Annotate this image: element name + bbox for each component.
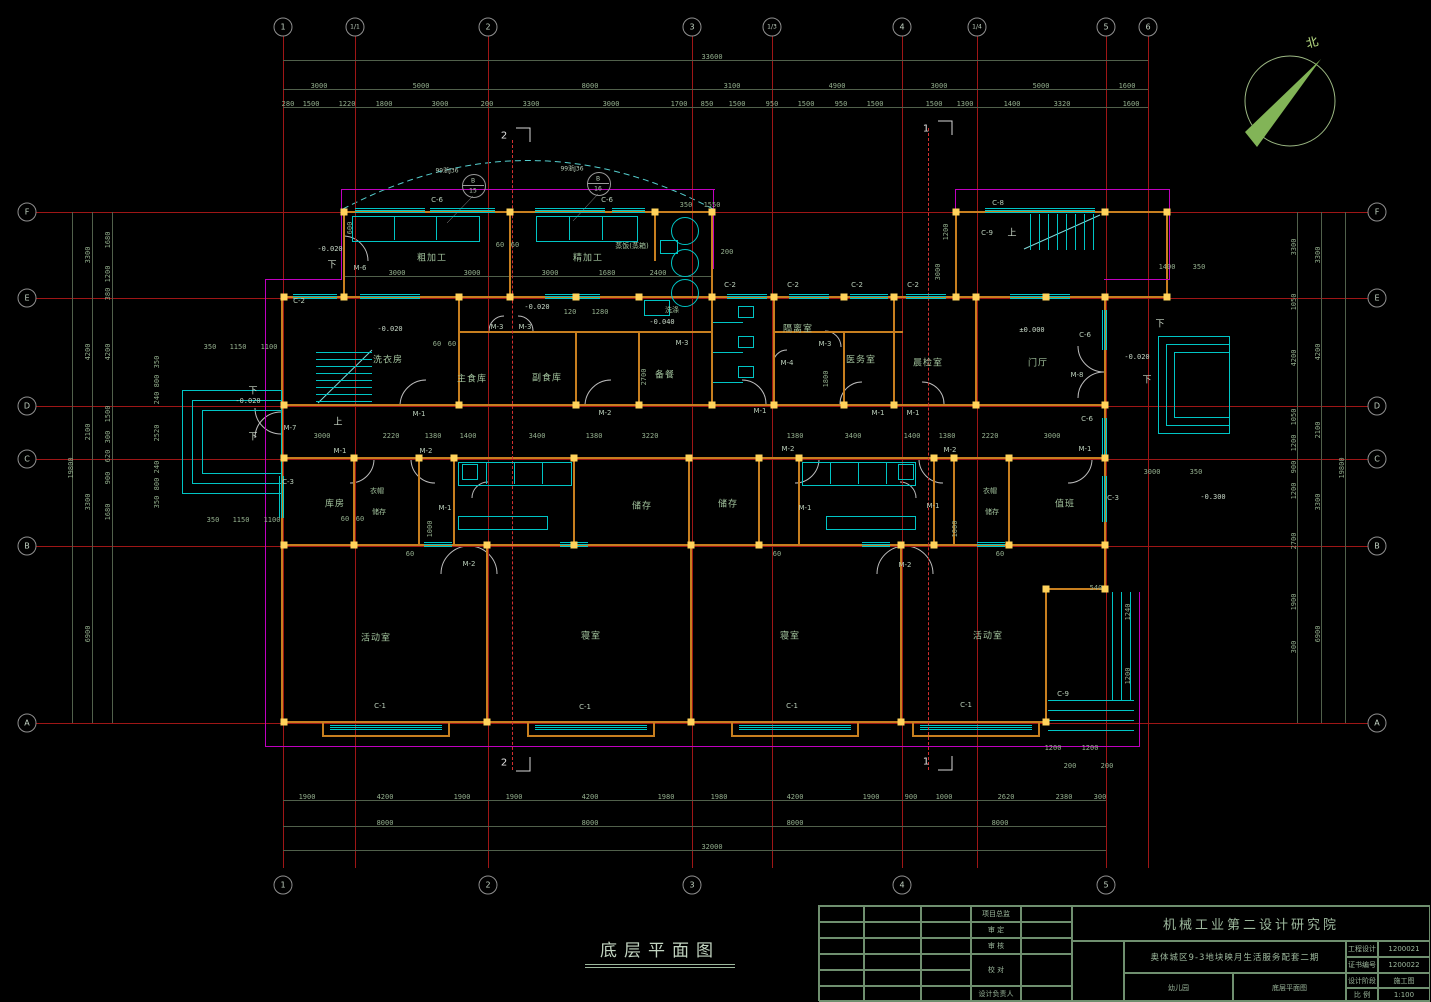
room-label: 副食库	[532, 371, 562, 384]
dimension-text: 2700	[1290, 533, 1298, 550]
column-marker	[709, 209, 716, 216]
dimension-text: 33600	[701, 53, 722, 61]
room-label: 衣帽	[370, 486, 384, 496]
wall-segment	[893, 296, 895, 406]
column-marker	[973, 294, 980, 301]
dimension-text: 200	[481, 100, 494, 108]
outline-magenta	[1104, 279, 1170, 280]
column-marker	[951, 455, 958, 462]
room-label: 蒸饭(蒸箱)	[615, 241, 648, 251]
dimension-text: 1050	[1290, 409, 1298, 426]
dimension-text: 3000	[542, 269, 559, 277]
column-marker	[281, 719, 288, 726]
dimension-text: 350	[680, 201, 693, 209]
column-marker	[484, 719, 491, 726]
column-marker	[351, 455, 358, 462]
dimension-text: 1380	[425, 432, 442, 440]
dimension-text: 1600	[1123, 100, 1140, 108]
sign-value-cell	[1021, 906, 1072, 922]
door-window-tag: M-1	[798, 504, 811, 512]
column-marker	[281, 294, 288, 301]
dimension-text: 8000	[992, 819, 1009, 827]
dimension-text: 2220	[383, 432, 400, 440]
grid-bubble-row: A	[1368, 714, 1387, 733]
detail-callout-divider	[462, 185, 484, 186]
wall-segment	[460, 331, 713, 333]
dimension-text: 60	[356, 515, 364, 523]
column-marker	[1102, 455, 1109, 462]
annotation: 15	[469, 188, 477, 195]
revision-cell	[819, 906, 864, 922]
bay-window	[920, 725, 1032, 730]
door-window-tag: M-2	[781, 445, 794, 453]
wall-segment	[1045, 588, 1047, 723]
grid-bubble-col: 5	[1097, 18, 1116, 37]
dimension-text: 3000	[389, 269, 406, 277]
fixture-rect	[352, 216, 480, 242]
room-label: 医务室	[846, 353, 876, 366]
grid-line-horizontal	[36, 546, 1368, 547]
dimension-text: 8000	[787, 819, 804, 827]
dimension-text: 800	[153, 478, 161, 491]
window-glyph	[906, 294, 946, 299]
bay-window	[739, 725, 851, 730]
dimension-text: 900	[905, 793, 918, 801]
outline-magenta	[265, 279, 342, 280]
dimension-text: 1000	[936, 793, 953, 801]
fixture-rect	[738, 366, 754, 378]
dimension-text: 4200	[1314, 344, 1322, 361]
door-window-tag: C-1	[960, 701, 972, 709]
column-marker	[652, 209, 659, 216]
drawing-path	[1078, 346, 1104, 372]
door-window-tag: M-8	[1070, 371, 1083, 379]
fixture-rect	[826, 516, 916, 530]
fixture-rect	[898, 464, 914, 480]
title-block-field-value: 1:100	[1378, 988, 1430, 1002]
column-marker	[1102, 209, 1109, 216]
dimension-text: 1800	[376, 100, 393, 108]
column-marker	[1043, 294, 1050, 301]
wall-segment	[458, 296, 460, 406]
door-window-tag: M-1	[753, 407, 766, 415]
fixture-line	[1084, 214, 1085, 250]
column-marker	[898, 719, 905, 726]
wall-segment	[843, 331, 845, 406]
column-marker	[571, 455, 578, 462]
column-marker	[891, 294, 898, 301]
dimension-text: 1700	[671, 100, 688, 108]
dimension-text: 2400	[650, 269, 667, 277]
door-window-tag: M-1	[1078, 445, 1091, 453]
wall-segment	[955, 211, 957, 298]
annotation: 下	[248, 430, 257, 443]
wall-segment	[509, 211, 511, 298]
fixture-line	[316, 373, 372, 374]
grid-bubble-col: 1/3	[763, 18, 782, 37]
door-window-tag: C-6	[601, 196, 613, 204]
room-label: 洗涤	[665, 305, 679, 315]
sign-label: 审 定	[971, 922, 1021, 938]
level-mark: -0.020	[377, 325, 402, 333]
column-marker	[281, 455, 288, 462]
window-glyph	[360, 294, 420, 299]
revision-cell	[819, 986, 864, 1002]
dimension-text: 3000	[603, 100, 620, 108]
grid-bubble-col: 2	[479, 876, 498, 895]
dimension-text: 1900	[506, 793, 523, 801]
door-window-tag: C-9	[981, 229, 993, 237]
grid-line-vertical	[488, 36, 489, 868]
room-label: 储存	[718, 497, 738, 510]
drawing-path	[400, 380, 426, 406]
room-label: 门厅	[1028, 356, 1048, 369]
fixture-line	[1048, 700, 1134, 701]
title-block-field-label: 工程设计	[1346, 941, 1378, 957]
annotation: 下	[1142, 373, 1151, 386]
door-window-tag: C-3	[1107, 494, 1119, 502]
door-window-tag: C-6	[1079, 331, 1091, 339]
wall-segment	[900, 544, 902, 723]
dimension-text: 1380	[939, 432, 956, 440]
dimension-text: 3000	[464, 269, 481, 277]
drawing-path	[938, 756, 952, 770]
grid-bubble-row: B	[18, 537, 37, 556]
room-label: 粗加工	[417, 251, 447, 264]
dimension-text: 4200	[104, 344, 112, 361]
column-marker	[1006, 455, 1013, 462]
dimension-text: 240	[153, 392, 161, 405]
fixture-line	[1039, 214, 1040, 250]
column-marker	[931, 542, 938, 549]
wall-segment	[353, 457, 355, 546]
fixture-line	[713, 322, 743, 323]
sign-value-cell	[1021, 986, 1072, 1002]
door-window-tag: M-7	[283, 424, 296, 432]
dimension-text: 1900	[863, 793, 880, 801]
bay-window	[330, 725, 442, 730]
dimension-text: 1200	[1290, 435, 1298, 452]
column-marker	[953, 294, 960, 301]
bay-front	[912, 735, 1040, 737]
section-cut-line	[512, 140, 513, 770]
wall-segment	[773, 296, 775, 406]
door-window-tag: C-6	[431, 196, 443, 204]
sign-label: 设计负责人	[971, 986, 1021, 1002]
drawing-path	[922, 382, 944, 404]
room-label: 隔离室	[783, 322, 813, 335]
dimension-text: 200	[1101, 762, 1114, 770]
dimension-text: 1150	[233, 516, 250, 524]
title-block-field-label: 设计阶段	[1346, 973, 1378, 988]
room-label: 储存	[632, 499, 652, 512]
dimension-text: 1900	[299, 793, 316, 801]
column-marker	[1102, 586, 1109, 593]
grid-line-vertical	[355, 36, 356, 868]
title-block-project: 奥体城区9-3地块映月生活服务配套二期	[1124, 941, 1346, 973]
dimension-text: 1200	[942, 224, 950, 241]
column-marker	[573, 402, 580, 409]
door-window-tag: M-1	[333, 447, 346, 455]
room-label: 库房	[325, 497, 345, 510]
dimension-text: 60	[433, 340, 441, 348]
fixture-line	[1093, 214, 1094, 250]
detail-callout-divider	[587, 183, 609, 184]
column-marker	[688, 542, 695, 549]
dimension-rail	[92, 212, 93, 723]
drawing-path	[318, 350, 372, 403]
level-mark: -0.020	[524, 303, 549, 311]
dimension-text: 1150	[230, 343, 247, 351]
dimension-text: 950	[766, 100, 779, 108]
drawing-path	[516, 128, 530, 142]
column-marker	[756, 455, 763, 462]
fixture-line	[1048, 730, 1134, 731]
fixture-line	[316, 380, 372, 381]
dimension-text: 300	[104, 431, 112, 444]
column-marker	[756, 542, 763, 549]
dimension-text: 200	[1064, 762, 1077, 770]
annotation: 上	[333, 415, 342, 428]
dimension-text: 3300	[84, 247, 92, 264]
dimension-text: 1200	[1290, 483, 1298, 500]
level-mark: -0.300	[1200, 493, 1225, 501]
room-label: 精加工	[573, 251, 603, 264]
dimension-text: 1380	[787, 432, 804, 440]
grid-bubble-col: 1/1	[346, 18, 365, 37]
dimension-rail	[112, 212, 113, 723]
wall-segment	[690, 544, 692, 723]
fixture-rect	[202, 410, 282, 474]
wall-segment	[654, 211, 656, 261]
dimension-text: 3300	[1314, 494, 1322, 511]
column-marker	[281, 542, 288, 549]
column-marker	[953, 209, 960, 216]
annotation: 16	[594, 186, 602, 193]
title-block-institute: 机械工业第二设计研究院	[1072, 906, 1430, 941]
dimension-rail	[283, 826, 1106, 827]
dimension-text: 4200	[582, 793, 599, 801]
fixture-line	[1057, 214, 1058, 250]
grid-bubble-row: C	[1368, 450, 1387, 469]
window-glyph	[612, 208, 645, 213]
cooking-pot	[671, 217, 699, 245]
dimension-text: 350	[1193, 263, 1206, 271]
dimension-text: 3000	[1144, 468, 1161, 476]
fixture-line	[1048, 214, 1049, 250]
fixture-rect	[462, 464, 478, 480]
dimension-text: 3300	[1290, 239, 1298, 256]
dimension-text: 1400	[904, 432, 921, 440]
dimension-text: 380	[104, 288, 112, 301]
outline-magenta	[341, 189, 342, 280]
sign-value-cell	[1021, 938, 1072, 954]
drawing-path	[919, 459, 943, 483]
column-marker	[507, 209, 514, 216]
door-window-tag: C-8	[992, 199, 1004, 207]
dimension-text: 350	[153, 356, 161, 369]
dimension-text: 6900	[1314, 626, 1322, 643]
window-glyph	[789, 294, 829, 299]
drawing-vector-layer	[0, 0, 1431, 1002]
window-glyph	[1102, 310, 1107, 350]
dimension-text: 1600	[1119, 82, 1136, 90]
fixture-line	[1075, 214, 1076, 250]
dimension-text: 1680	[599, 269, 616, 277]
door-window-tag: M-2	[598, 409, 611, 417]
dimension-text: 5000	[1033, 82, 1050, 90]
dimension-rail	[283, 800, 1106, 801]
door-window-tag: M-3	[490, 323, 503, 331]
title-block-subproject: 幼儿园	[1124, 973, 1233, 1002]
dimension-text: 1500	[798, 100, 815, 108]
column-marker	[1102, 542, 1109, 549]
revision-cell	[819, 954, 864, 970]
dimension-text: 1900	[1290, 594, 1298, 611]
outline-magenta	[265, 746, 1140, 747]
title-block-field-value: 施工图	[1378, 973, 1430, 988]
drawing-path	[343, 161, 713, 210]
wall-segment	[453, 457, 455, 546]
door-window-tag: C-2	[293, 297, 305, 305]
dimension-text: 2520	[153, 425, 161, 442]
dimension-text: 1400	[460, 432, 477, 440]
grid-bubble-col: 4	[893, 876, 912, 895]
fixture-line	[316, 401, 372, 402]
grid-bubble-row: E	[1368, 289, 1387, 308]
fixture-line	[316, 359, 372, 360]
dimension-text: 1500	[867, 100, 884, 108]
dimension-text: 60	[496, 241, 504, 249]
window-glyph	[1010, 294, 1070, 299]
dimension-text: 1400	[1004, 100, 1021, 108]
wall-segment	[486, 544, 488, 723]
dimension-text: 3300	[523, 100, 540, 108]
wall-segment	[1008, 457, 1010, 546]
column-marker	[1102, 402, 1109, 409]
section-cut-line	[928, 128, 929, 770]
column-marker	[351, 542, 358, 549]
annotation: 下	[248, 384, 257, 397]
door-window-tag: M-3	[675, 339, 688, 347]
dimension-text: 19800	[67, 457, 75, 478]
door-window-tag: M-4	[780, 359, 793, 367]
dimension-text: 4200	[787, 793, 804, 801]
column-marker	[341, 294, 348, 301]
fixture-rect	[536, 216, 638, 242]
revision-cell	[921, 954, 971, 970]
grid-bubble-row: D	[18, 397, 37, 416]
title-block-field-label: 证书编号	[1346, 957, 1378, 973]
dimension-text: 1680	[104, 504, 112, 521]
column-marker	[456, 402, 463, 409]
door-window-tag: M-2	[898, 561, 911, 569]
door-window-tag: C-2	[851, 281, 863, 289]
dimension-text: 900	[104, 472, 112, 485]
column-marker	[571, 542, 578, 549]
wall-segment	[418, 457, 420, 546]
wall-segment	[798, 457, 800, 546]
door-window-tag: C-1	[579, 703, 591, 711]
revision-cell	[864, 906, 921, 922]
drawing-path	[585, 380, 611, 406]
column-marker	[891, 402, 898, 409]
grid-line-vertical	[692, 36, 693, 868]
revision-cell	[921, 938, 971, 954]
fixture-line	[316, 387, 372, 388]
room-label: 活动室	[973, 629, 1003, 642]
grid-bubble-row: F	[1368, 203, 1387, 222]
dimension-text: 4200	[377, 793, 394, 801]
drawing-path	[1068, 459, 1092, 483]
column-marker	[796, 455, 803, 462]
grid-bubble-row: C	[18, 450, 37, 469]
fixture-rect	[738, 336, 754, 348]
dimension-text: 2220	[982, 432, 999, 440]
title-block-field-value: 1200022	[1378, 957, 1430, 973]
door-window-tag: M-1	[926, 502, 939, 510]
grid-bubble-col: 1/4	[968, 18, 987, 37]
room-label: 储存	[372, 507, 386, 517]
column-marker	[636, 294, 643, 301]
column-marker	[484, 542, 491, 549]
column-marker	[636, 402, 643, 409]
title-block-spacer	[1072, 941, 1124, 1002]
bay-front	[527, 735, 655, 737]
dimension-text: 19800	[1338, 457, 1346, 478]
column-marker	[281, 402, 288, 409]
level-mark: -0.020	[1124, 353, 1149, 361]
grid-bubble-row: D	[1368, 397, 1387, 416]
dimension-text: 1500	[729, 100, 746, 108]
revision-cell	[864, 922, 921, 938]
grid-bubble-col: 5	[1097, 876, 1116, 895]
fixture-line	[1048, 720, 1134, 721]
window-glyph	[355, 208, 425, 213]
wall-segment	[1166, 211, 1168, 298]
fixture-line	[1066, 214, 1067, 250]
wall-segment	[688, 457, 690, 546]
outline-magenta	[1139, 592, 1140, 747]
room-label: 衣帽	[983, 486, 997, 496]
window-glyph	[727, 294, 767, 299]
dimension-text: 1800	[822, 371, 830, 388]
column-marker	[341, 209, 348, 216]
outline-magenta	[955, 189, 1170, 190]
dimension-text: 350	[153, 496, 161, 509]
wall-segment	[343, 211, 345, 298]
door-window-tag: C-2	[724, 281, 736, 289]
revision-cell	[921, 970, 971, 986]
room-label: 洗衣房	[373, 353, 403, 366]
dimension-text: 32000	[701, 843, 722, 851]
dimension-text: 1680	[104, 232, 112, 249]
dimension-rail	[283, 850, 1106, 851]
door-window-tag: C-6	[1081, 415, 1093, 423]
revision-cell	[864, 954, 921, 970]
wall-segment	[711, 296, 713, 406]
drawing-path	[1024, 215, 1100, 249]
dimension-text: 4200	[84, 344, 92, 361]
dimension-text: 1100	[261, 343, 278, 351]
dimension-text: 1200	[1045, 744, 1062, 752]
dimension-text: 1500	[104, 406, 112, 423]
dimension-text: 850	[701, 100, 714, 108]
window-glyph	[850, 294, 888, 299]
dimension-text: 1500	[303, 100, 320, 108]
door-window-tag: M-1	[412, 410, 425, 418]
dimension-text: 1550	[704, 201, 721, 209]
